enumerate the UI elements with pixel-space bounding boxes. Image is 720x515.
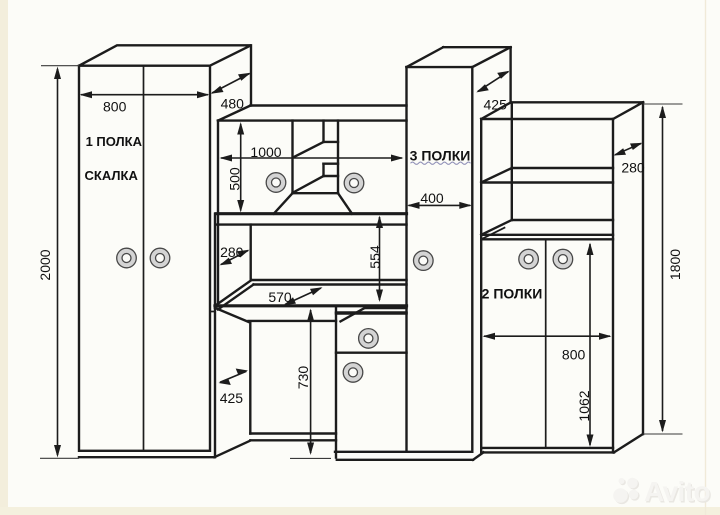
- svg-text:280: 280: [621, 160, 645, 176]
- svg-text:500: 500: [226, 167, 242, 191]
- svg-text:3 ПОЛКИ: 3 ПОЛКИ: [410, 148, 471, 164]
- svg-text:800: 800: [562, 347, 586, 363]
- svg-text:400: 400: [420, 190, 444, 206]
- svg-text:1000: 1000: [250, 144, 281, 160]
- svg-text:280: 280: [220, 244, 244, 260]
- svg-text:Avito: Avito: [644, 476, 710, 507]
- svg-text:554: 554: [367, 245, 383, 269]
- svg-text:2000: 2000: [37, 249, 53, 280]
- svg-text:730: 730: [295, 366, 311, 390]
- svg-text:2 ПОЛКИ: 2 ПОЛКИ: [482, 286, 543, 302]
- svg-text:1 ПОЛКА: 1 ПОЛКА: [86, 134, 143, 149]
- svg-text:СКАЛКА: СКАЛКА: [85, 168, 139, 183]
- svg-text:570: 570: [268, 289, 292, 305]
- svg-text:800: 800: [103, 99, 127, 115]
- svg-text:1800: 1800: [667, 249, 683, 280]
- svg-text:425: 425: [220, 390, 244, 406]
- svg-text:1062: 1062: [576, 390, 592, 421]
